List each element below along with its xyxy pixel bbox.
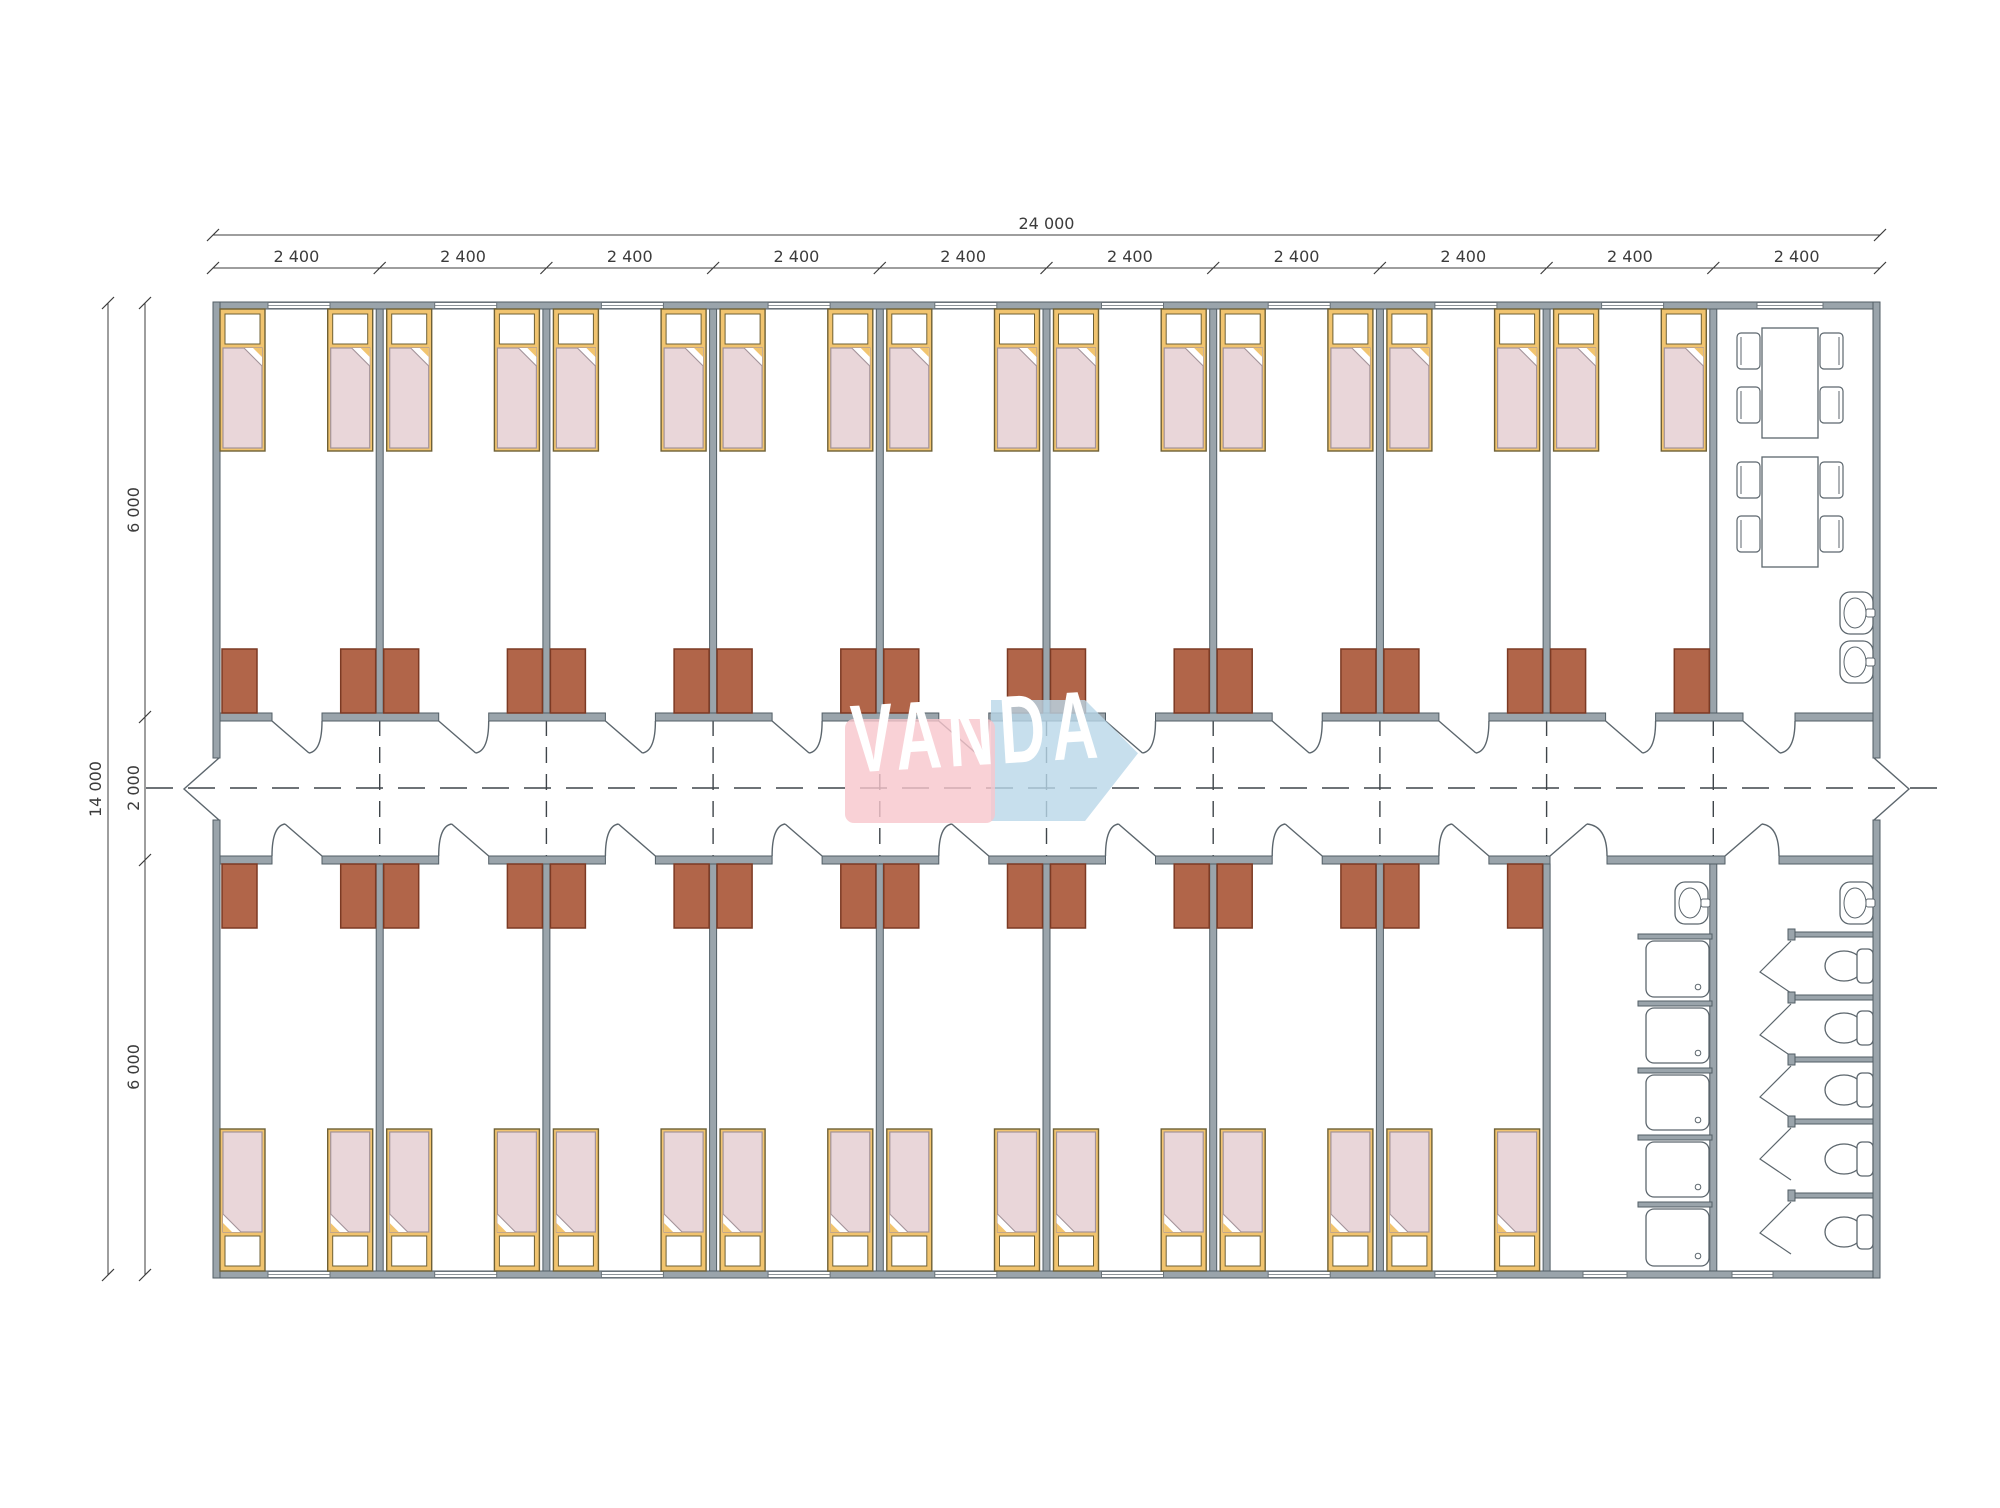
chair — [1820, 516, 1843, 552]
height-segment-label: 6 000 — [124, 487, 143, 533]
wash-basin — [1840, 882, 1875, 924]
corridor-wall-top — [1656, 713, 1743, 721]
wardrobe — [550, 864, 585, 928]
bed — [494, 1129, 539, 1271]
bed-blanket — [831, 348, 870, 448]
bed-pillow — [1500, 1236, 1535, 1266]
toilet-tank — [1857, 1215, 1873, 1249]
wardrobe — [1551, 649, 1586, 713]
corridor-wall-top — [822, 713, 939, 721]
corridor-wall-top — [489, 713, 606, 721]
bed — [1661, 309, 1706, 451]
corridor-wall-top — [1489, 713, 1606, 721]
bed-pillow — [1333, 1236, 1368, 1266]
wardrobe — [550, 649, 585, 713]
chair — [1820, 462, 1843, 498]
chair — [1820, 333, 1843, 369]
chair — [1737, 333, 1760, 369]
corridor-wall-bottom — [655, 856, 772, 864]
bed — [387, 1129, 432, 1271]
bed-blanket — [497, 348, 536, 448]
beds — [220, 309, 1706, 1271]
bed — [661, 309, 706, 451]
bed-blanket — [497, 1132, 536, 1232]
wardrobe — [841, 864, 876, 928]
bed-pillow — [1559, 314, 1594, 344]
wardrobe — [507, 649, 542, 713]
corridor-wall-top — [1322, 713, 1439, 721]
bed-pillow — [1000, 1236, 1035, 1266]
corridor-end-door — [1874, 758, 1909, 820]
bed-pillow — [1166, 314, 1201, 344]
corridor-wall-bottom — [1489, 856, 1550, 864]
exterior-wall-left — [213, 820, 220, 1278]
bed — [661, 1129, 706, 1271]
bed-blanket — [1223, 348, 1262, 448]
corridor-wall-bottom — [1322, 856, 1439, 864]
floor-plan-canvas: 24 0002 4002 4002 4002 4002 4002 4002 40… — [0, 0, 2000, 1508]
partition-wall-top — [1376, 309, 1383, 713]
bed-pillow — [225, 314, 260, 344]
bed-pillow — [1059, 314, 1094, 344]
bed-blanket — [390, 348, 429, 448]
height-segment-label: 2 000 — [124, 765, 143, 811]
bed-pillow — [892, 1236, 927, 1266]
bed-blanket — [998, 1132, 1037, 1232]
bed-blanket — [664, 1132, 703, 1232]
bed-blanket — [1390, 348, 1429, 448]
bed-blanket — [1164, 348, 1203, 448]
bed — [1328, 309, 1373, 451]
door-swing — [272, 721, 322, 753]
bed — [1495, 309, 1540, 451]
shower-tray-pan — [1646, 1209, 1709, 1266]
partition-wall-top — [1210, 309, 1217, 713]
stall-door-jamb — [1788, 1116, 1795, 1127]
bed — [220, 309, 265, 451]
bed-blanket — [223, 1132, 262, 1232]
shower-partition-wall — [1638, 1068, 1712, 1073]
wash-basin — [1840, 641, 1875, 683]
bed — [553, 309, 598, 451]
door-swing — [1439, 824, 1489, 856]
bed-blanket — [998, 348, 1037, 448]
basin-tap — [1701, 899, 1710, 907]
corridor-wall-top — [1156, 713, 1273, 721]
corridor-wall-bottom — [822, 856, 939, 864]
bed — [1161, 1129, 1206, 1271]
bed — [1220, 1129, 1265, 1271]
bed-blanket — [1498, 348, 1537, 448]
shower-tray — [1646, 1008, 1709, 1063]
bed — [995, 1129, 1040, 1271]
door-swing — [939, 721, 989, 753]
exterior-wall-right — [1873, 820, 1880, 1278]
bed-pillow — [725, 1236, 760, 1266]
toilet-stall-partition — [1795, 1119, 1873, 1124]
bed — [1161, 309, 1206, 451]
door-swing — [772, 721, 822, 753]
corridor-wall-bottom — [1779, 856, 1873, 864]
wardrobe — [1341, 649, 1376, 713]
bed-blanket — [1331, 1132, 1370, 1232]
module-width-label: 2 400 — [940, 247, 986, 266]
toilet-tank — [1857, 1011, 1873, 1045]
toilet-stall-partition — [1795, 995, 1873, 1000]
bed — [328, 309, 373, 451]
bed-blanket — [223, 348, 262, 448]
bed-blanket — [1057, 1132, 1096, 1232]
bed-pillow — [892, 314, 927, 344]
bed-blanket — [331, 348, 370, 448]
wardrobe — [1217, 649, 1252, 713]
door-swing — [605, 824, 655, 856]
wardrobe — [222, 864, 257, 928]
wardrobe — [1341, 864, 1376, 928]
wardrobe — [841, 649, 876, 713]
module-width-label: 2 400 — [273, 247, 319, 266]
partition-wall-bottom — [1543, 864, 1550, 1271]
bed — [1054, 309, 1099, 451]
partition-wall-bottom — [376, 864, 383, 1271]
bed — [720, 1129, 765, 1271]
corridor-wall-top — [989, 713, 1106, 721]
module-width-label: 2 400 — [1107, 247, 1153, 266]
bed — [1054, 1129, 1099, 1271]
wardrobe — [341, 649, 376, 713]
corridor-wall-bottom — [322, 856, 439, 864]
door-swing — [1439, 721, 1489, 753]
bed-pillow — [1059, 1236, 1094, 1266]
door-swing — [1272, 721, 1322, 753]
wardrobe — [1174, 864, 1209, 928]
bed — [494, 309, 539, 451]
corridor-wall-bottom — [1607, 856, 1725, 864]
exterior-wall-left — [213, 302, 220, 758]
bed-blanket — [831, 1132, 870, 1232]
shower-tray — [1646, 941, 1709, 997]
bed-blanket — [1557, 348, 1596, 448]
door-swing — [1272, 824, 1322, 856]
shower-tray — [1646, 1209, 1709, 1266]
corridor-wall-bottom — [989, 856, 1106, 864]
bed-blanket — [1164, 1132, 1203, 1232]
bed-blanket — [1057, 348, 1096, 448]
bed-pillow — [1392, 314, 1427, 344]
bed-pillow — [725, 314, 760, 344]
bed-pillow — [1500, 314, 1535, 344]
partition-wall-top — [376, 309, 383, 713]
corridor-end-door — [184, 758, 219, 820]
dining-area — [1737, 328, 1843, 567]
module-width-label: 2 400 — [607, 247, 653, 266]
bed-pillow — [1225, 314, 1260, 344]
wardrobe — [1508, 649, 1543, 713]
toilet-tank — [1857, 949, 1873, 983]
wardrobe — [717, 864, 752, 928]
partition-wall-bottom — [710, 864, 717, 1271]
stall-door-jamb — [1788, 992, 1795, 1003]
bed-pillow — [392, 1236, 427, 1266]
bed-pillow — [499, 1236, 534, 1266]
dining-table — [1762, 328, 1818, 438]
chair — [1737, 387, 1760, 423]
door-swing — [1550, 824, 1607, 856]
bed-pillow — [333, 314, 368, 344]
bed-blanket — [390, 1132, 429, 1232]
bed-pillow — [1166, 1236, 1201, 1266]
wardrobe — [507, 864, 542, 928]
toilet — [1825, 1215, 1873, 1249]
bed-blanket — [556, 1132, 595, 1232]
bed-blanket — [556, 348, 595, 448]
bed — [887, 1129, 932, 1271]
stall-door-swing — [1760, 1128, 1791, 1180]
bed-blanket — [331, 1132, 370, 1232]
bed-blanket — [1223, 1132, 1262, 1232]
door-swing — [439, 824, 489, 856]
wardrobe — [884, 864, 919, 928]
toilet — [1825, 1011, 1873, 1045]
chair — [1820, 387, 1843, 423]
wardrobe — [222, 649, 257, 713]
wash-basin — [1840, 592, 1875, 634]
wardrobe — [1217, 864, 1252, 928]
wardrobe — [884, 649, 919, 713]
partition-wall-top — [543, 309, 550, 713]
shower-partition-wall — [1638, 1135, 1712, 1140]
bed-blanket — [1331, 348, 1370, 448]
total-height-label: 14 000 — [86, 761, 105, 817]
bed-pillow — [558, 1236, 593, 1266]
bed-blanket — [1498, 1132, 1537, 1232]
wardrobe — [341, 864, 376, 928]
door-swing — [605, 721, 655, 753]
corridor-wall-top — [655, 713, 772, 721]
wardrobe — [1008, 649, 1043, 713]
bed-pillow — [833, 314, 868, 344]
bed-pillow — [225, 1236, 260, 1266]
wardrobe — [674, 864, 709, 928]
stall-door-swing — [1760, 1202, 1791, 1254]
partition-wall-top — [1710, 309, 1717, 713]
wardrobe — [1674, 649, 1709, 713]
shower-tray — [1646, 1142, 1709, 1197]
partition-wall-bottom — [1043, 864, 1050, 1271]
toilet-stall-partition — [1795, 1057, 1873, 1062]
toilet-stall-partition — [1795, 932, 1873, 937]
bed-blanket — [723, 348, 762, 448]
module-width-label: 2 400 — [1274, 247, 1320, 266]
partition-wall-top — [710, 309, 717, 713]
stall-door-swing — [1760, 941, 1791, 993]
toilet — [1825, 1073, 1873, 1107]
toilet — [1825, 949, 1873, 983]
partition-wall-top — [876, 309, 883, 713]
partition-wall-bottom — [1376, 864, 1383, 1271]
toilet-stall-partition — [1795, 1193, 1873, 1198]
wash-basin — [1675, 882, 1710, 924]
bed — [887, 309, 932, 451]
stall-door-swing — [1760, 1066, 1791, 1118]
wardrobe — [1384, 864, 1419, 928]
bed — [995, 309, 1040, 451]
bed — [720, 309, 765, 451]
wardrobe — [1384, 649, 1419, 713]
height-segment-label: 6 000 — [124, 1044, 143, 1090]
corridor-wall-top — [220, 713, 272, 721]
partition-wall-top — [1043, 309, 1050, 713]
door-swing — [272, 824, 322, 856]
bed — [220, 1129, 265, 1271]
bed-pillow — [666, 1236, 701, 1266]
bed — [1495, 1129, 1540, 1271]
wardrobe — [384, 649, 419, 713]
shower-partition-wall — [1638, 934, 1712, 939]
bed-blanket — [664, 348, 703, 448]
toilet-tank — [1857, 1073, 1873, 1107]
dining-table — [1762, 457, 1818, 567]
wardrobe — [717, 649, 752, 713]
partition-wall-top — [1543, 309, 1550, 713]
bed-pillow — [1225, 1236, 1260, 1266]
chair — [1737, 462, 1760, 498]
module-width-label: 2 400 — [774, 247, 820, 266]
bed-pillow — [1000, 314, 1035, 344]
bed — [1328, 1129, 1373, 1271]
door-swing — [439, 721, 489, 753]
basin-tap — [1866, 899, 1875, 907]
shower-partition-wall — [1638, 1001, 1712, 1006]
bed-pillow — [392, 314, 427, 344]
bed — [328, 1129, 373, 1271]
partition-wall-bottom — [876, 864, 883, 1271]
wardrobe — [1508, 864, 1543, 928]
stall-door-jamb — [1788, 1054, 1795, 1065]
wardrobe — [1051, 649, 1086, 713]
wardrobe — [384, 864, 419, 928]
total-width-label: 24 000 — [1019, 214, 1075, 233]
bed-pillow — [1333, 314, 1368, 344]
bed-blanket — [1390, 1132, 1429, 1232]
corridor-wall-bottom — [1156, 856, 1273, 864]
bed — [387, 309, 432, 451]
door-swing — [1106, 824, 1156, 856]
stall-door-jamb — [1788, 1190, 1795, 1201]
module-width-label: 2 400 — [440, 247, 486, 266]
module-width-label: 2 400 — [1440, 247, 1486, 266]
bed-blanket — [890, 348, 929, 448]
basin-tap — [1866, 658, 1875, 666]
corridor-wall-top — [322, 713, 439, 721]
basin-tap — [1866, 609, 1875, 617]
wardrobe — [1008, 864, 1043, 928]
wardrobe — [1051, 864, 1086, 928]
bed-blanket — [723, 1132, 762, 1232]
partition-wall-bottom — [1210, 864, 1217, 1271]
bed — [1387, 1129, 1432, 1271]
bed-pillow — [558, 314, 593, 344]
exterior-wall-right — [1873, 302, 1880, 758]
corridor-wall-bottom — [489, 856, 606, 864]
bed-blanket — [890, 1132, 929, 1232]
toilet — [1825, 1142, 1873, 1176]
stall-door-jamb — [1788, 929, 1795, 940]
wardrobe — [674, 649, 709, 713]
bed-pillow — [1392, 1236, 1427, 1266]
floor-plan: 24 0002 4002 4002 4002 4002 4002 4002 40… — [0, 0, 2000, 1508]
door-swing — [1743, 721, 1795, 753]
corridor-wall-top — [1795, 713, 1873, 721]
bed-pillow — [833, 1236, 868, 1266]
module-width-label: 2 400 — [1774, 247, 1820, 266]
door-swing — [772, 824, 822, 856]
door-swing — [1106, 721, 1156, 753]
bed-pillow — [666, 314, 701, 344]
door-swing — [1606, 721, 1656, 753]
bed — [553, 1129, 598, 1271]
stall-door-swing — [1760, 1004, 1791, 1056]
shower-tray-pan — [1646, 941, 1709, 997]
shower-tray — [1646, 1075, 1709, 1130]
bed — [1387, 309, 1432, 451]
toilet-tank — [1857, 1142, 1873, 1176]
chair — [1737, 516, 1760, 552]
bed-blanket — [1664, 348, 1703, 448]
partition-wall-bottom — [543, 864, 550, 1271]
wardrobe — [1174, 649, 1209, 713]
door-swing — [939, 824, 989, 856]
door-swing — [1725, 824, 1779, 856]
bed-pillow — [1666, 314, 1701, 344]
bed — [828, 309, 873, 451]
bed-pillow — [333, 1236, 368, 1266]
bed-pillow — [499, 314, 534, 344]
shower-partition-wall — [1638, 1202, 1712, 1207]
bed — [1220, 309, 1265, 451]
corridor-wall-bottom — [220, 856, 272, 864]
module-width-label: 2 400 — [1607, 247, 1653, 266]
bed — [1554, 309, 1599, 451]
bed — [828, 1129, 873, 1271]
